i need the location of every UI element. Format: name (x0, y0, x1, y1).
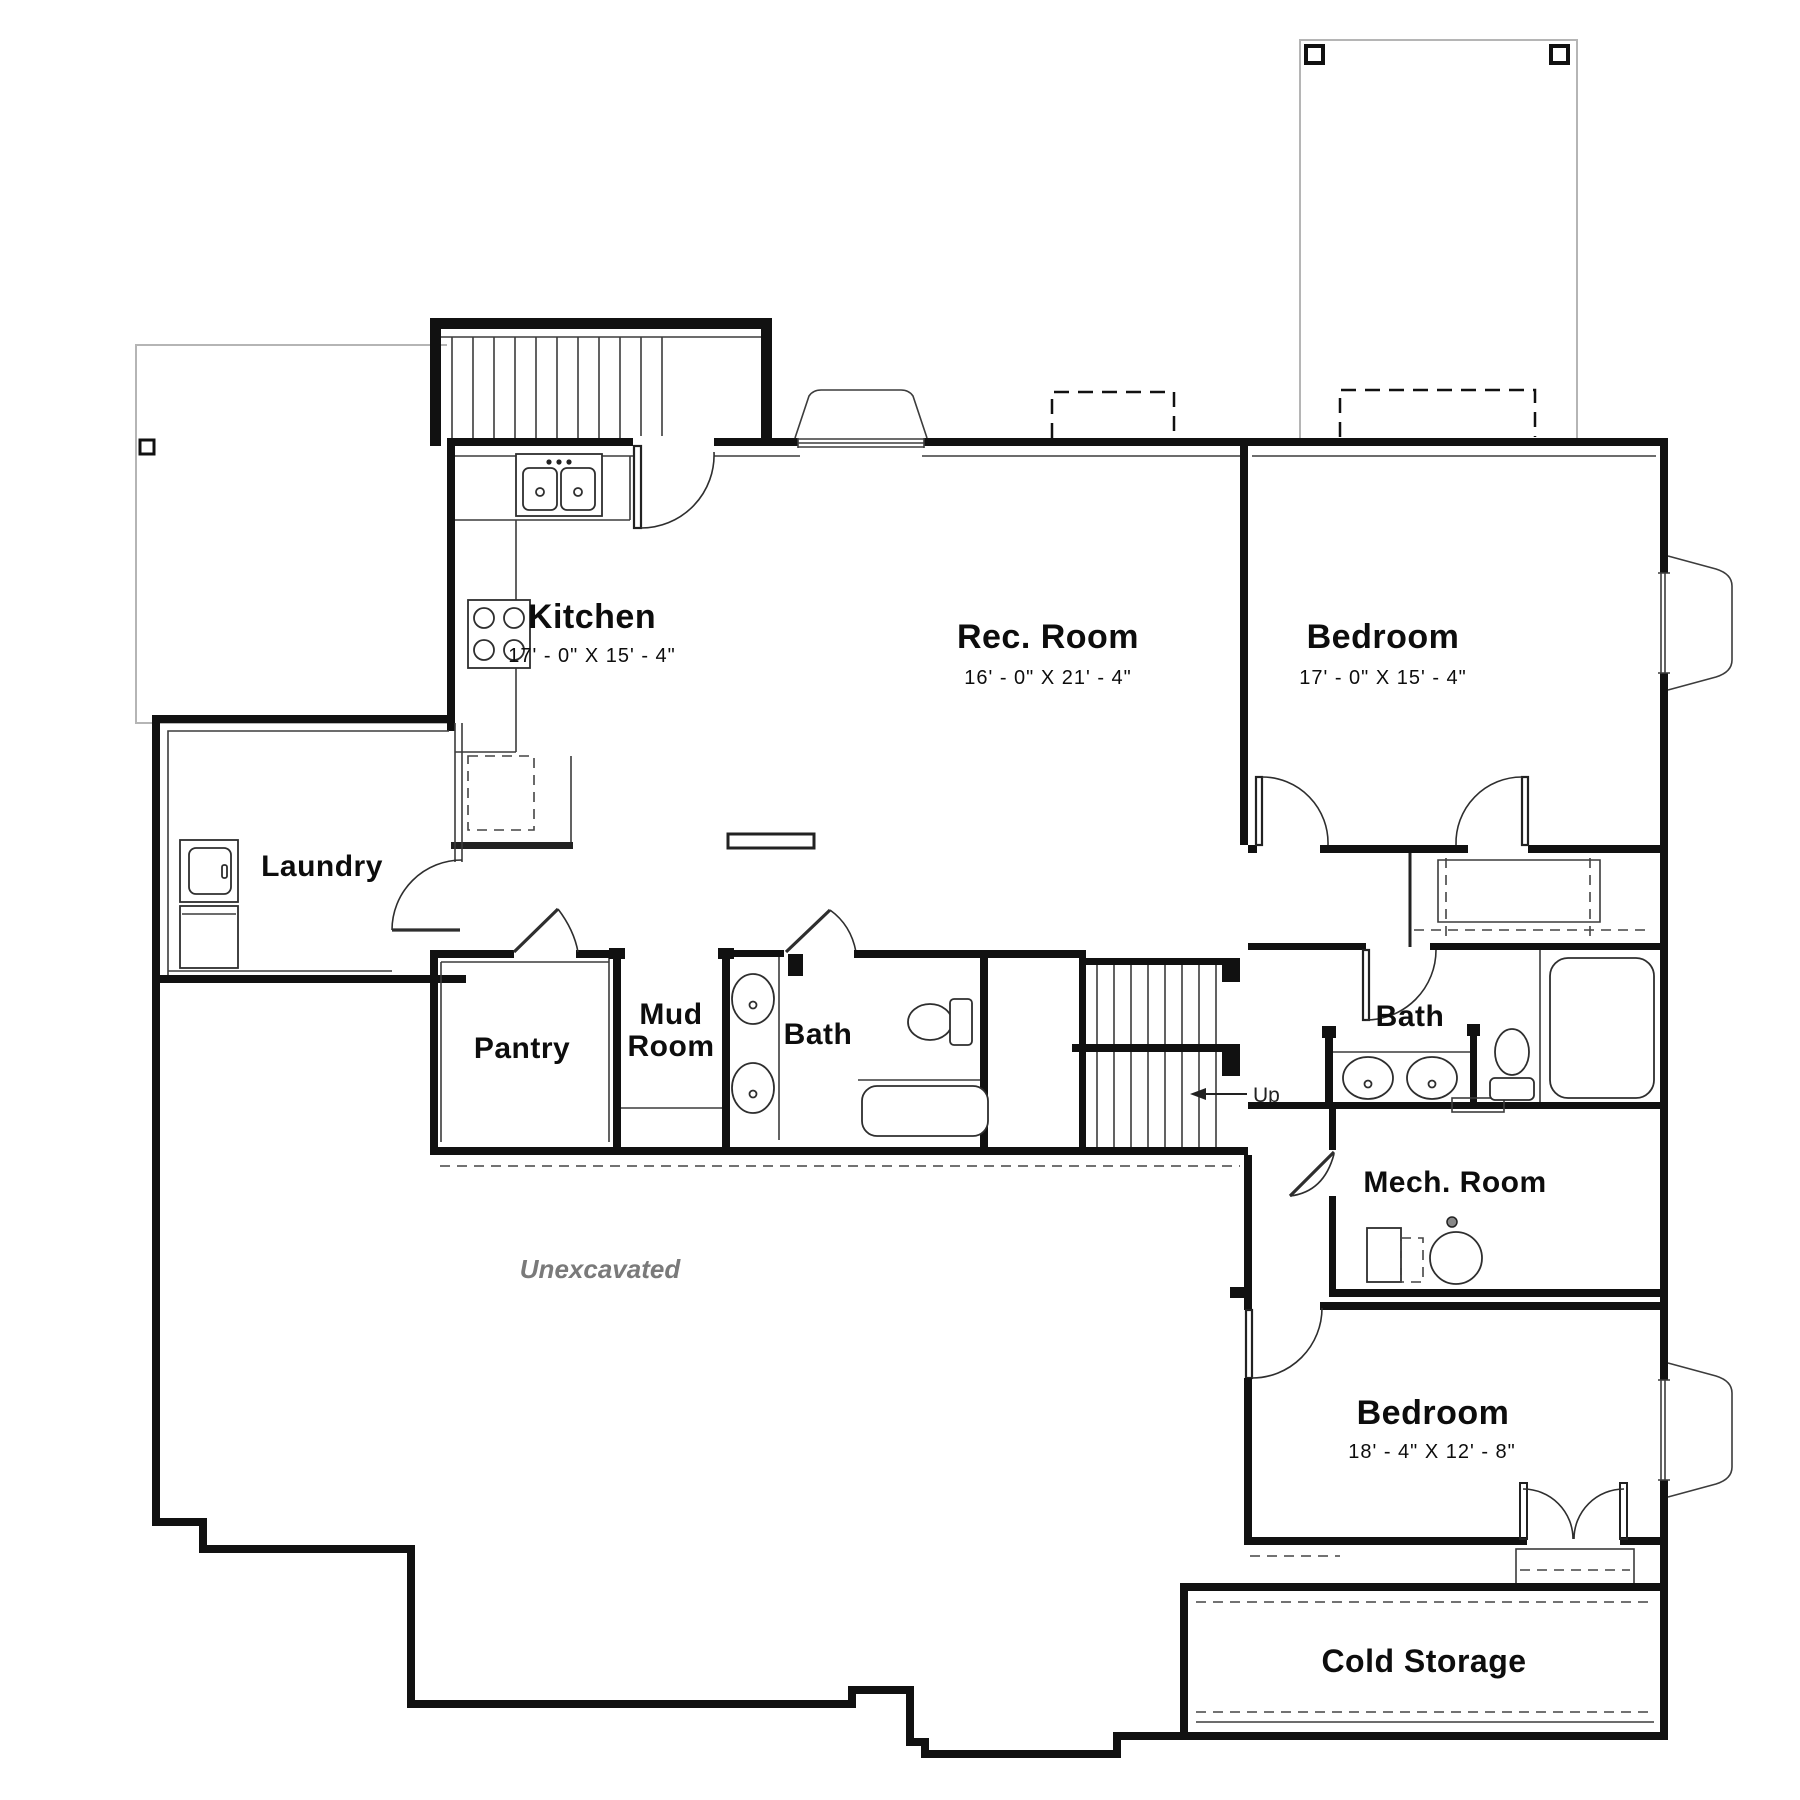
washer-icon (180, 840, 238, 902)
window-well-icon (1668, 1363, 1732, 1497)
bedroom-ne-closet (1410, 853, 1652, 947)
dryer-icon (180, 906, 238, 968)
toilet-two-icon (1490, 1029, 1534, 1100)
room-label-kitchen: Kitchen (528, 598, 656, 636)
floor-plan-drawing: Up (0, 0, 1800, 1800)
room-label-pantry: Pantry (474, 1032, 570, 1065)
patio-overhead-outline-top-left (136, 345, 447, 723)
window-well-icon (795, 390, 927, 438)
bath-main-sinks-icon (732, 974, 774, 1113)
window-well-icon (1668, 556, 1732, 690)
staircase (1072, 954, 1240, 1151)
room-label-bedroom-s: Bedroom (1357, 1394, 1510, 1432)
bedroom-s-walls (1230, 1155, 1664, 1545)
rec-room-beam (728, 834, 814, 848)
bathtub-main-icon (862, 1086, 988, 1136)
room-dims-bedroom-ne: 17' - 0" X 15' - 4" (1299, 667, 1467, 689)
window-well-dashed-right (1340, 390, 1535, 437)
bedroom-s-double-door (1516, 1483, 1634, 1585)
toilet-main-icon (908, 999, 972, 1045)
up-arrow-icon (1190, 1088, 1206, 1100)
room-label-bath-main: Bath (784, 1018, 853, 1051)
room-dims-rec-room: 16' - 0" X 21' - 4" (964, 667, 1132, 689)
kitchen-entry-door (455, 436, 1656, 528)
room-label-bedroom-ne: Bedroom (1307, 618, 1460, 656)
bathtub-two-icon (1550, 958, 1654, 1098)
furnace-icon (1367, 1228, 1423, 1282)
water-heater-icon (1430, 1217, 1482, 1284)
deck-overhead-outline-top-right (1300, 40, 1577, 445)
refrigerator-dashed-icon (468, 756, 534, 830)
room-label-rec-room: Rec. Room (957, 618, 1139, 656)
room-labels: Kitchen 17' - 0" X 15' - 4" Rec. Room 16… (261, 598, 1547, 1679)
room-dims-bedroom-s: 18' - 4" X 12' - 8" (1348, 1441, 1516, 1463)
room-label-laundry: Laundry (261, 850, 383, 883)
rec-room-window (795, 390, 927, 448)
floor-plan-canvas: Up (0, 0, 1800, 1800)
exterior-stairs-deck (430, 318, 772, 446)
bath-two-sinks-icon (1343, 1057, 1457, 1099)
room-dims-kitchen: 17' - 0" X 15' - 4" (508, 645, 676, 667)
room-label-mud-2: Room (628, 1030, 715, 1063)
room-label-cold-storage: Cold Storage (1321, 1643, 1526, 1679)
unexcavated-boundary (430, 1147, 1340, 1556)
room-label-bath-two: Bath (1376, 1000, 1445, 1033)
room-label-unexcavated: Unexcavated (520, 1254, 682, 1284)
kitchen-sink-icon (516, 454, 602, 516)
room-label-mud: Mud (639, 998, 702, 1031)
window-well-dashed-left (1052, 392, 1174, 438)
bedroom-ne-egress-window (1658, 556, 1732, 690)
bedroom-s-egress-window (1658, 1363, 1732, 1497)
room-label-mech-room: Mech. Room (1363, 1166, 1546, 1199)
